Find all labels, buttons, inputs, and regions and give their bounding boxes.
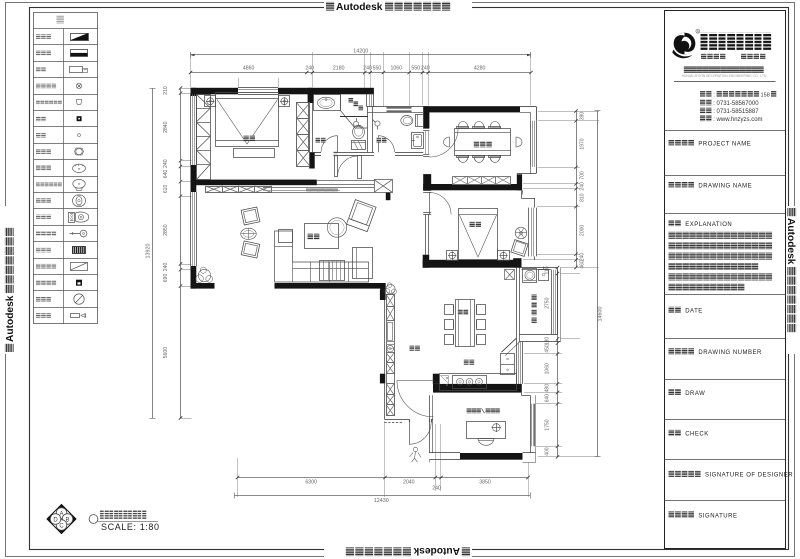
svg-text:550: 550 — [373, 66, 382, 72]
svg-text:2850: 2850 — [163, 224, 169, 236]
svg-text:EXPLANATION: EXPLANATION — [685, 222, 732, 228]
svg-text:SIGNATURE: SIGNATURE — [698, 513, 737, 519]
svg-text:SIGNATURE OF DESIGNER: SIGNATURE OF DESIGNER — [705, 473, 793, 479]
svg-text:Autodesk: Autodesk — [336, 2, 383, 13]
svg-text:2840: 2840 — [163, 121, 169, 133]
svg-text:450: 450 — [545, 344, 551, 353]
svg-text:180: 180 — [545, 337, 551, 346]
svg-text:240: 240 — [580, 253, 586, 262]
svg-text:13920: 13920 — [146, 244, 152, 259]
svg-text:2000: 2000 — [580, 225, 586, 236]
svg-text:5600: 5600 — [163, 347, 169, 359]
svg-text:: www.hnzyzs.com: : www.hnzyzs.com — [713, 117, 762, 123]
svg-text:PROJECT NAME: PROJECT NAME — [698, 141, 751, 147]
svg-text:Autodesk: Autodesk — [5, 295, 16, 342]
svg-text:CHECK: CHECK — [685, 432, 709, 438]
svg-text:400: 400 — [545, 447, 551, 456]
svg-text:240: 240 — [432, 485, 441, 491]
svg-text:240: 240 — [163, 159, 169, 168]
svg-text:240: 240 — [580, 182, 586, 191]
svg-text:810: 810 — [580, 193, 586, 202]
svg-text:610: 610 — [163, 184, 169, 193]
svg-text:4280: 4280 — [474, 66, 486, 72]
svg-text:Autodesk: Autodesk — [413, 545, 460, 556]
svg-text:DRAW: DRAW — [685, 391, 705, 397]
svg-text:1970: 1970 — [580, 138, 586, 149]
svg-text:240: 240 — [163, 262, 169, 271]
svg-text:158: 158 — [761, 93, 770, 99]
svg-text:640: 640 — [163, 170, 169, 179]
svg-text:DATE: DATE — [685, 309, 703, 315]
svg-text:460: 460 — [580, 260, 586, 269]
svg-text:240: 240 — [305, 66, 314, 72]
svg-text:D: D — [53, 517, 58, 523]
svg-text:4860: 4860 — [243, 66, 255, 72]
svg-text:12430: 12430 — [374, 498, 389, 504]
svg-text:240: 240 — [363, 66, 372, 72]
svg-text:640: 640 — [545, 394, 551, 403]
svg-text:14200: 14200 — [353, 49, 368, 55]
svg-text:Autodesk: Autodesk — [785, 218, 796, 265]
svg-text:1750: 1750 — [545, 419, 551, 430]
svg-text:240: 240 — [421, 66, 430, 72]
svg-text:DRAWING NAME: DRAWING NAME — [698, 183, 752, 189]
svg-text:2040: 2040 — [403, 479, 415, 485]
svg-text:SCALE: 1:80: SCALE: 1:80 — [101, 522, 160, 532]
svg-text:: 0731-58515887: : 0731-58515887 — [713, 109, 759, 115]
svg-text:690: 690 — [163, 274, 169, 283]
svg-text:3850: 3850 — [479, 479, 491, 485]
svg-text:1060: 1060 — [545, 363, 551, 374]
svg-text:480: 480 — [545, 384, 551, 393]
svg-text:210: 210 — [163, 86, 169, 95]
svg-text:2750: 2750 — [545, 297, 551, 308]
svg-text:2180: 2180 — [333, 66, 345, 72]
svg-text:: 0731-58567000: : 0731-58567000 — [713, 101, 759, 107]
svg-text:390: 390 — [580, 112, 586, 121]
svg-text:C: C — [59, 523, 64, 529]
svg-text:700: 700 — [580, 171, 586, 180]
svg-text:6300: 6300 — [305, 479, 317, 485]
svg-text:1060: 1060 — [391, 66, 403, 72]
svg-text:550: 550 — [411, 66, 420, 72]
svg-text:HUNAN ZHIYIN DECORATION ENGINE: HUNAN ZHIYIN DECORATION ENGINEERING CO.,… — [682, 74, 767, 78]
svg-text:14600: 14600 — [598, 307, 604, 322]
svg-text:DRAWING NUMBER: DRAWING NUMBER — [698, 350, 762, 356]
